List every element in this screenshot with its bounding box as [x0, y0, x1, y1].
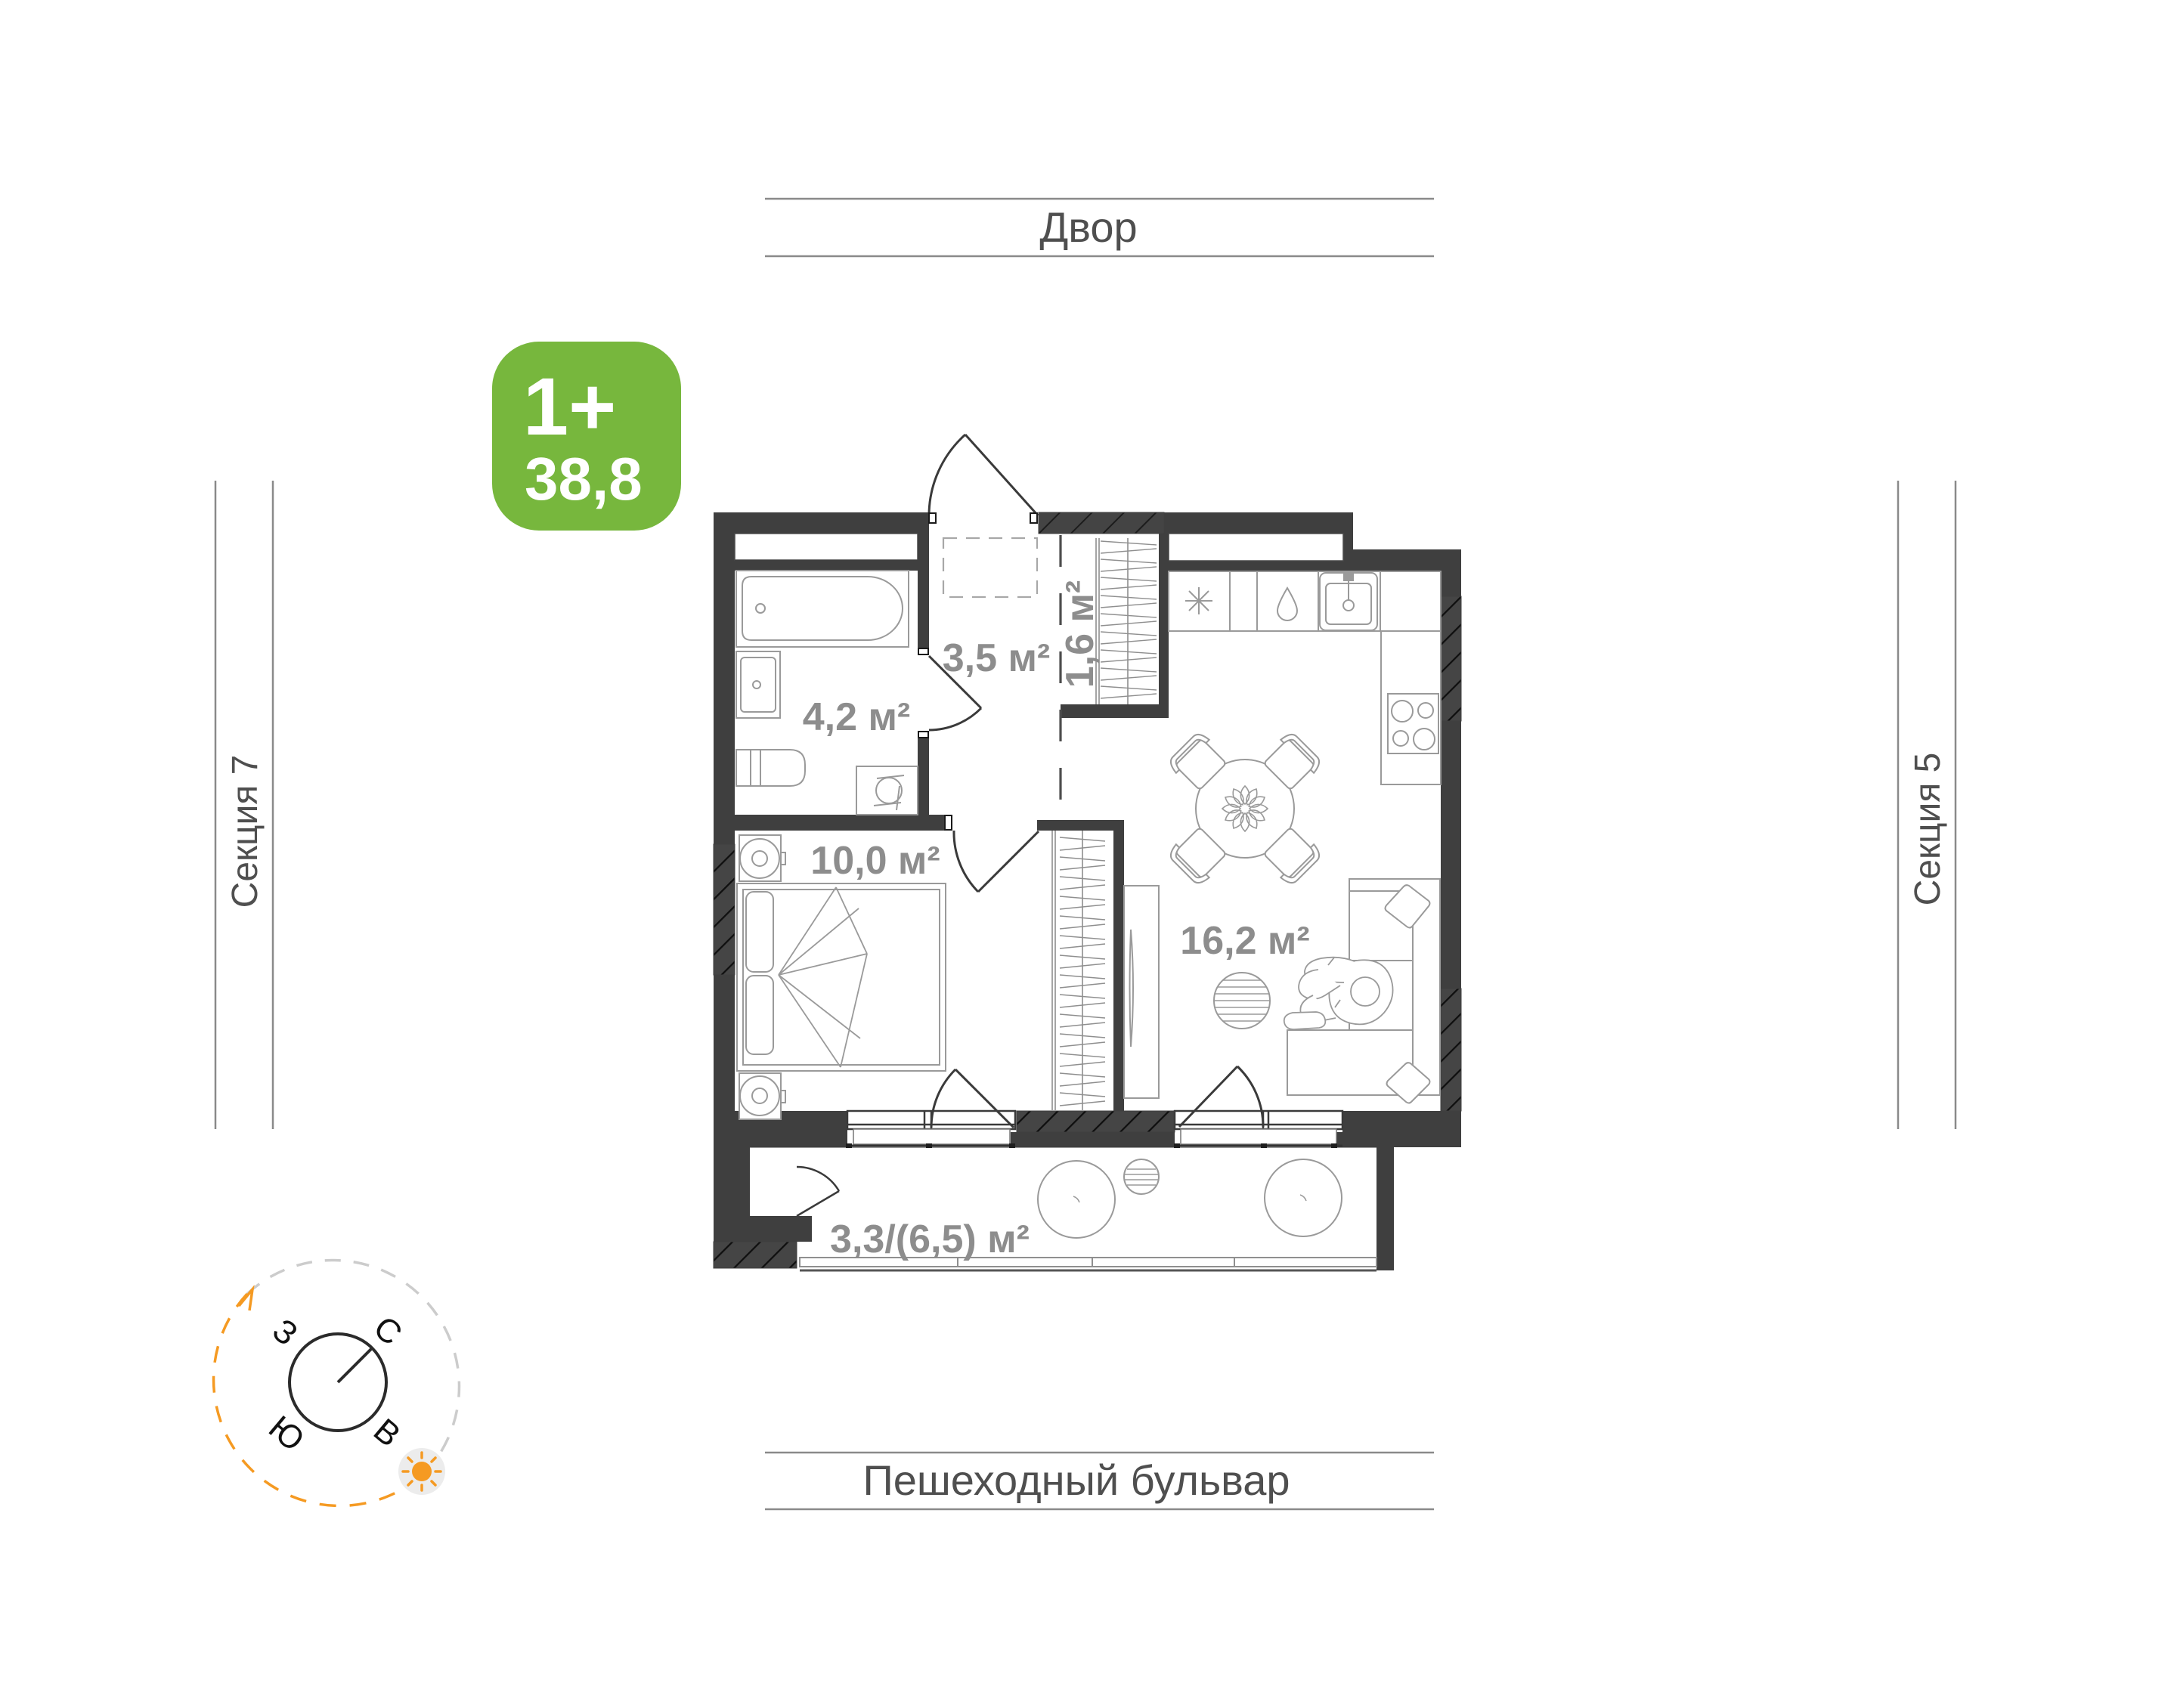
svg-text:Пешеходный бульвар: Пешеходный бульвар [862, 1456, 1290, 1504]
svg-text:1,6 м²: 1,6 м² [1058, 580, 1102, 688]
svg-text:3,3/(6,5) м²: 3,3/(6,5) м² [830, 1218, 1030, 1261]
svg-text:3,5 м²: 3,5 м² [943, 636, 1051, 680]
svg-text:1+: 1+ [523, 360, 616, 452]
svg-text:38,8: 38,8 [525, 445, 643, 512]
svg-text:Секция 5: Секция 5 [1908, 753, 1948, 906]
svg-text:4,2 м²: 4,2 м² [803, 695, 911, 739]
svg-text:16,2 м²: 16,2 м² [1180, 919, 1309, 963]
svg-text:Секция 7: Секция 7 [225, 755, 265, 908]
svg-text:Двор: Двор [1039, 203, 1137, 251]
svg-text:10,0 м²: 10,0 м² [810, 839, 940, 883]
